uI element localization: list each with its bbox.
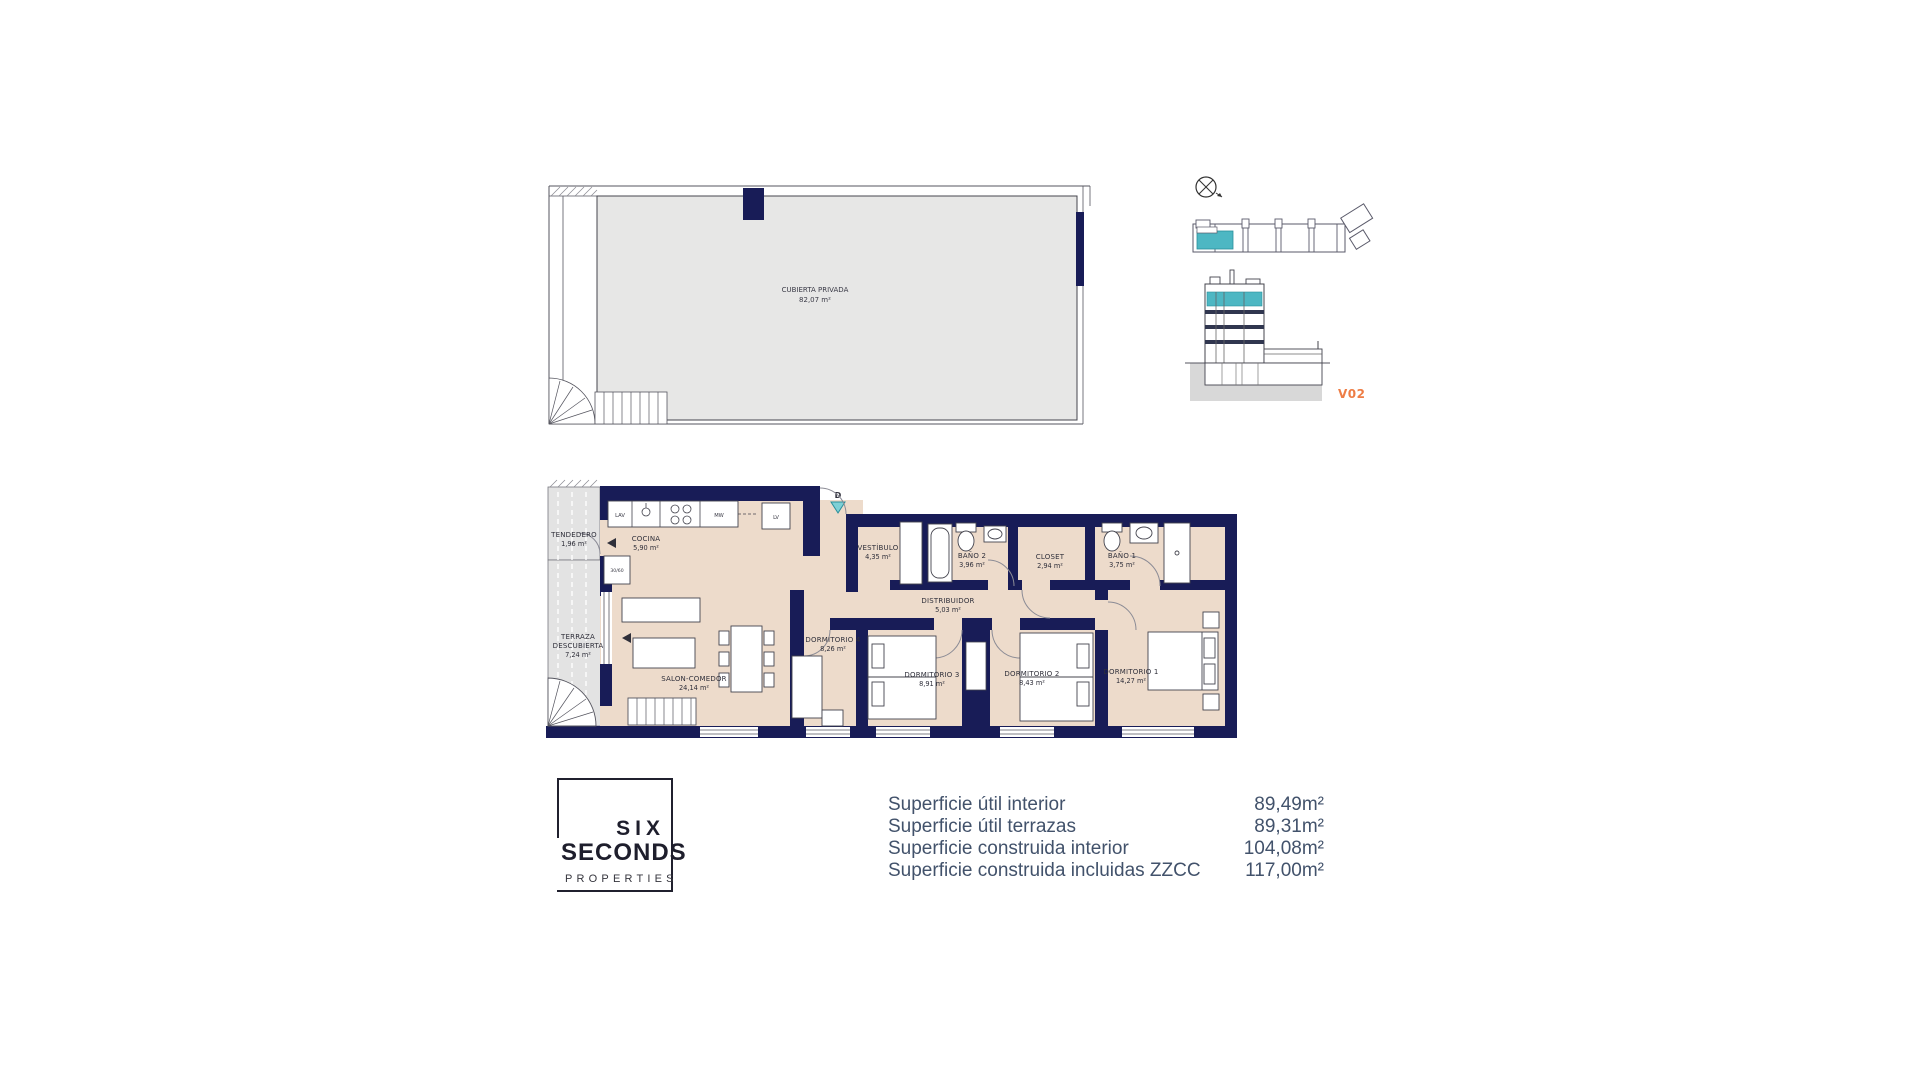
section-basement xyxy=(1205,363,1322,385)
svg-text:24,14 m²: 24,14 m² xyxy=(679,684,709,692)
room-dorm3: DORMITORIO 3 xyxy=(904,671,959,679)
roof-hatch xyxy=(551,187,597,196)
logo-properties: PROPERTIES xyxy=(565,873,678,885)
area-label: Superficie construida interior xyxy=(888,838,1129,860)
dorm4-wardrobe xyxy=(792,656,822,718)
logo-seconds: SECONDS xyxy=(561,839,687,867)
unit-code-label: V02 xyxy=(1338,387,1366,401)
wardrobe-niche xyxy=(966,642,986,690)
logo-six: SIX xyxy=(616,817,665,841)
tendedero-hatch xyxy=(550,480,597,487)
svg-text:14,27 m²: 14,27 m² xyxy=(1116,677,1146,685)
logo-border-left xyxy=(557,778,559,838)
locator-section: V02 xyxy=(1185,270,1366,401)
toilet-bowl-2 xyxy=(1104,531,1120,551)
brand-logo: SIX SECONDS PROPERTIES xyxy=(557,778,673,892)
svg-text:3,75 m²: 3,75 m² xyxy=(1109,561,1135,569)
site-highlighted-unit xyxy=(1197,231,1233,249)
room-dorm4: DORMITORIO 4 xyxy=(805,636,861,644)
svg-text:2,94 m²: 2,94 m² xyxy=(1037,562,1063,570)
area-value: 104,08m² xyxy=(1244,838,1324,860)
sideboard xyxy=(622,598,700,622)
site-angled-unit-2 xyxy=(1350,230,1370,250)
room-bano1: BAÑO 1 xyxy=(1108,551,1136,560)
window-terraza xyxy=(601,592,612,664)
area-value: 89,49m² xyxy=(1254,794,1324,816)
floor-plan: 30/60 LAV MW LV D xyxy=(546,480,1237,738)
room-tendedero: TENDEDERO xyxy=(550,531,597,539)
room-dorm1: DORMITORIO 1 xyxy=(1103,668,1158,676)
roof-right-wall xyxy=(1076,212,1084,286)
roof-label: CUBIERTA PRIVADA xyxy=(782,286,849,294)
table-row: Superficie útil terrazas 89,31m² xyxy=(888,816,1324,838)
toilet-bowl xyxy=(958,531,974,551)
room-closet: CLOSET xyxy=(1036,553,1065,561)
site-angled-unit xyxy=(1341,204,1373,233)
hall-closet xyxy=(900,522,922,584)
svg-text:5,90 m²: 5,90 m² xyxy=(633,544,659,552)
area-label: Superficie útil terrazas xyxy=(888,816,1076,838)
area-label: Superficie construida incluidas ZZCC xyxy=(888,860,1201,882)
svg-text:8,91 m²: 8,91 m² xyxy=(919,680,945,688)
room-vestibulo: VESTÍBULO xyxy=(858,543,899,552)
table-row: Superficie construida incluidas ZZCC 117… xyxy=(888,860,1324,882)
svg-text:8,43 m²: 8,43 m² xyxy=(1019,679,1045,687)
dorm1-nightstand xyxy=(1203,612,1219,628)
dining-table xyxy=(731,626,762,692)
logo-border-top xyxy=(557,778,673,780)
svg-text:7,24 m²: 7,24 m² xyxy=(565,651,591,659)
svg-text:8,26 m²: 8,26 m² xyxy=(820,645,846,653)
roof-area: 82,07 m² xyxy=(799,296,831,304)
appliance-lv-label: LV xyxy=(773,515,779,521)
roof-shaft xyxy=(743,188,764,220)
room-cocina: COCINA xyxy=(632,535,661,543)
room-distribuidor: DISTRIBUIDOR xyxy=(921,597,974,605)
table-row: Superficie útil interior 89,49m² xyxy=(888,794,1324,816)
kitchen-counter: LAV MW LV xyxy=(608,501,790,529)
architectural-drawing: CUBIERTA PRIVADA 82,07 m² xyxy=(0,0,1920,1080)
room-salon: SALON-COMEDOR xyxy=(661,675,727,683)
shower xyxy=(1164,523,1190,583)
washbasin xyxy=(984,526,1006,542)
room-terraza: TERRAZA xyxy=(560,633,595,641)
roof-plan: CUBIERTA PRIVADA 82,07 m² xyxy=(547,186,1090,487)
section-roof-elements xyxy=(1210,270,1260,284)
area-value: 117,00m² xyxy=(1245,860,1324,882)
svg-text:3,96 m²: 3,96 m² xyxy=(959,561,985,569)
svg-text:DESCUBIERTA: DESCUBIERTA xyxy=(553,642,604,650)
tendedero-floor xyxy=(548,487,600,560)
roof-surface xyxy=(597,196,1077,420)
svg-text:1,96 m²: 1,96 m² xyxy=(561,540,587,548)
locator-site-plan xyxy=(1193,177,1373,252)
roof-stair-fan xyxy=(549,378,595,424)
stair-treads xyxy=(628,698,696,725)
appliance-lav-label: LAV xyxy=(615,513,625,519)
dorm1-nightstand-2 xyxy=(1203,694,1219,710)
logo-border-bottom xyxy=(557,890,673,892)
window-dorm1 xyxy=(1122,727,1194,737)
svg-text:5,03 m²: 5,03 m² xyxy=(935,606,961,614)
window-dorm3 xyxy=(876,727,930,737)
section-podium xyxy=(1264,349,1322,363)
column-label: 30/60 xyxy=(610,568,623,574)
page-canvas: CUBIERTA PRIVADA 82,07 m² xyxy=(0,0,1920,1080)
section-highlighted-floor xyxy=(1207,292,1262,306)
window-dorm2 xyxy=(1000,727,1054,737)
svg-text:4,35 m²: 4,35 m² xyxy=(865,553,891,561)
sofa xyxy=(633,638,695,668)
table-row: Superficie construida interior 104,08m² xyxy=(888,838,1324,860)
dorm4-desk xyxy=(822,710,843,726)
appliance-mw-label: MW xyxy=(714,513,724,519)
room-dorm2: DORMITORIO 2 xyxy=(1004,670,1059,678)
window-dorm4 xyxy=(806,727,850,737)
room-bano2: BAÑO 2 xyxy=(958,551,986,560)
washbasin-2 xyxy=(1130,523,1158,543)
window-salon xyxy=(700,727,758,737)
area-label: Superficie útil interior xyxy=(888,794,1065,816)
areas-table: Superficie útil interior 89,49m² Superfi… xyxy=(888,794,1324,882)
area-value: 89,31m² xyxy=(1254,816,1324,838)
